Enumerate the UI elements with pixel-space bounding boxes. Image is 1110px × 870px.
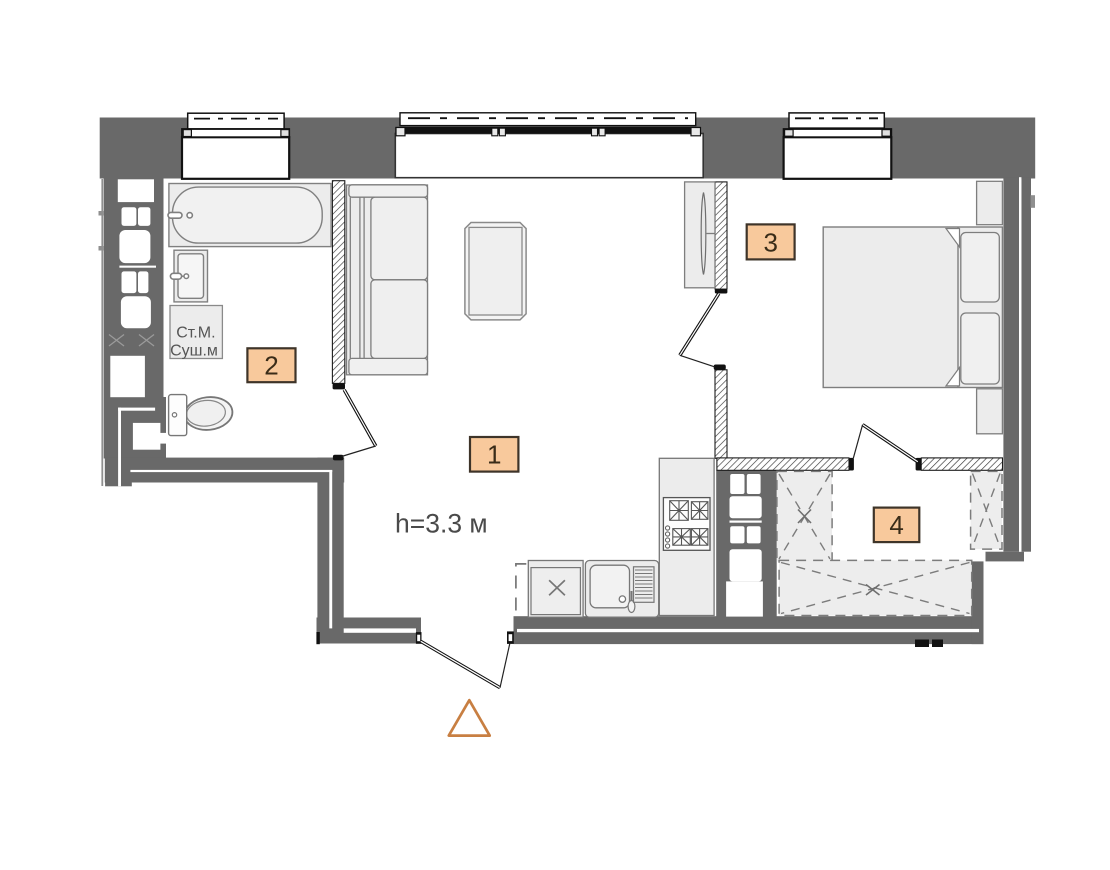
svg-text:Ст.М.: Ст.М. [176, 325, 215, 342]
svg-text:3: 3 [763, 227, 777, 257]
svg-text:Суш.м: Суш.м [170, 342, 218, 359]
svg-text:4: 4 [889, 510, 903, 540]
svg-text:2: 2 [264, 351, 278, 381]
svg-text:h=3.3 м: h=3.3 м [395, 509, 488, 539]
svg-text:1: 1 [487, 440, 501, 470]
